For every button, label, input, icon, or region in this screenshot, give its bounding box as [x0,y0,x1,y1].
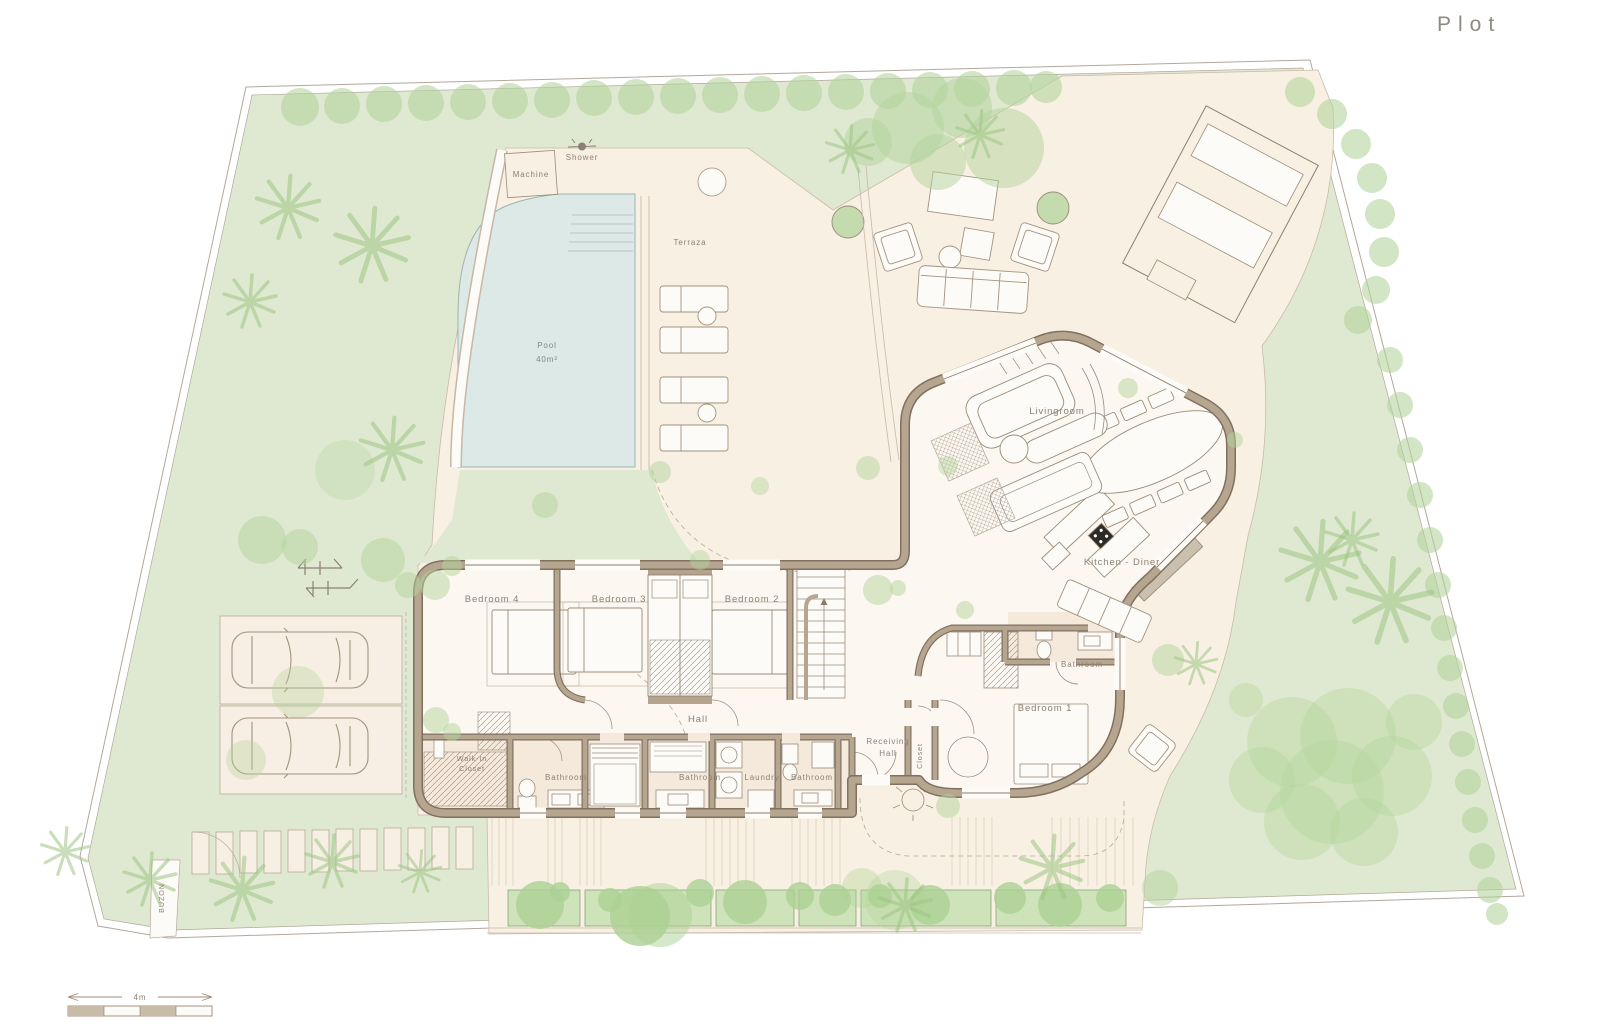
plan-drawing: Machine Shower Terraza Pool 40m² Livingr… [0,0,1600,1024]
label-receiving-1: Receiving [866,737,909,746]
label-bathroom-d: Bathroom [1061,660,1103,669]
deck-table [698,168,726,196]
scale-bar: 4m [68,993,212,1016]
label-pool: Pool [537,341,557,350]
wardrobe-block [648,565,712,704]
label-bathroom-b: Bathroom [679,773,721,782]
label-livingroom: Livingroom [1029,406,1084,417]
scale-label: 4m [134,993,147,1002]
site-plan-canvas: Machine Shower Terraza Pool 40m² Livingr… [0,0,1600,1024]
label-walkin-2: Closet [459,764,485,773]
label-shower: Shower [566,153,599,162]
label-bedroom3: Bedroom 3 [592,594,647,605]
label-pool-area: 40m² [536,355,558,364]
label-hall: Hall [688,714,708,725]
label-walkin-1: Walk-In [457,754,487,763]
label-kitchen-diner: Kitchen - Diner [1084,557,1160,568]
label-buzon: BUZON [157,883,166,913]
label-bedroom2: Bedroom 2 [725,594,780,605]
label-terraza: Terraza [674,238,707,247]
page-title: Plot [1437,13,1501,36]
label-receiving-2: Hall [879,749,896,758]
label-bathroom-c: Bathroom [791,773,833,782]
staircase [797,566,845,700]
label-bathroom-a: Bathroom [545,773,587,782]
label-bedroom1: Bedroom 1 [1018,703,1073,714]
label-bedroom4: Bedroom 4 [465,594,520,605]
label-laundry: Laundry [744,773,779,782]
label-closet: Closet [915,743,924,769]
label-machine: Machine [513,170,550,179]
